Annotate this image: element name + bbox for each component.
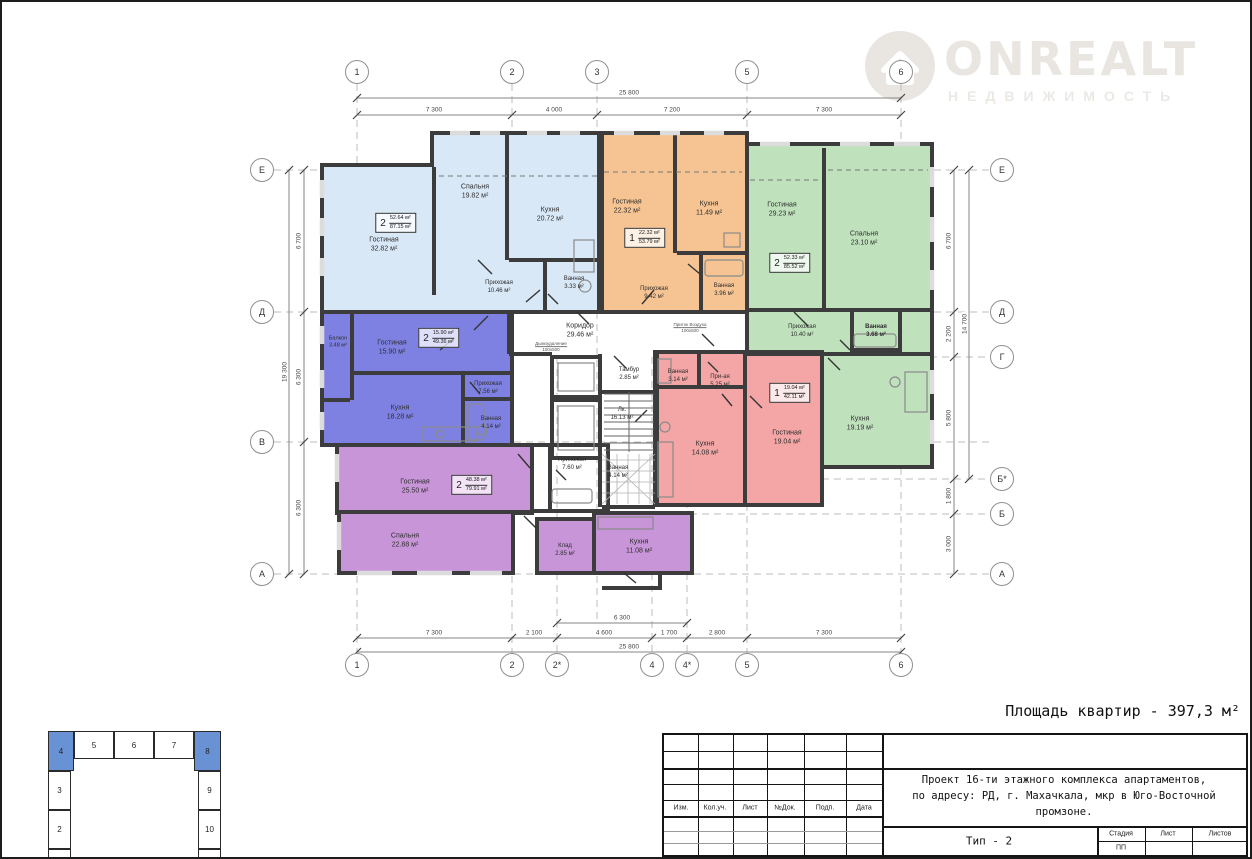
room-label-bath: Ванная 3.68 м² — [865, 323, 887, 339]
room-label-bedroom: Спальня 23.10 м² — [850, 230, 878, 249]
apartment-tag-blue: 2 52.64 м² 87.15 м² — [375, 213, 416, 233]
title-block: Изм. Кол.уч. Лист №Док. Подп. Дата Проек… — [662, 733, 1248, 857]
axis-bottom-6: 6 — [889, 653, 913, 677]
axis-right-b: Б — [990, 502, 1014, 526]
axis-top-3: 3 — [585, 60, 609, 84]
room-label-hall: Прихожая 7.60 м² — [558, 456, 586, 472]
keyplan-section-6: 6 — [114, 731, 154, 759]
room-label-tambour: Тамбур 2.85 м² — [619, 366, 639, 382]
room-label-kitchen: Кухня 20.72 м² — [537, 206, 564, 225]
room-label-storage: Клад 2.85 м² — [555, 542, 574, 558]
room-label-living: Гостиная 15.90 м² — [377, 339, 406, 358]
room-label-hall: Прихожая 7.56 м² — [474, 380, 502, 396]
room-label-living: Гостиная 22.32 м² — [612, 198, 641, 217]
balcony-dashed-lines — [439, 170, 928, 180]
room-label-bath: Ванная 3.14 м² — [668, 368, 689, 384]
axis-bottom-2s: 2* — [545, 653, 569, 677]
room-label-kitchen: Кухня 19.19 м² — [847, 415, 874, 434]
axis-top-6: 6 — [889, 60, 913, 84]
tb-col-podp: Подп. — [816, 805, 835, 812]
dim-right-seg: 6 700 — [946, 231, 953, 251]
dim-top-seg: 7 300 — [424, 107, 444, 114]
room-label-corridor: Коридор 29.46 м² — [566, 322, 594, 341]
floor-plan-sheet: ONREALT НЕДВИЖИМОСТЬ — [0, 0, 1252, 859]
dim-right-seg: 5 800 — [946, 408, 953, 428]
axis-bottom-4: 4 — [640, 653, 664, 677]
room-label-bedroom: Спальня 22.88 м² — [391, 532, 419, 551]
room-label-living: Гостиная 25.50 м² — [400, 478, 429, 497]
room-label-stair: Лк. 16.13 м² — [611, 406, 634, 422]
room-label-kitchen: Кухня 11.08 м² — [626, 538, 652, 557]
dim-right-seg: 2 200 — [946, 324, 953, 344]
dim-bottom-seg: 7 300 — [424, 630, 444, 637]
room-label-bath: Ванная 3.33 м² — [564, 275, 585, 291]
room-label-kitchen: Кухня 18.28 м² — [387, 404, 414, 423]
dim-top-total: 25 800 — [617, 90, 641, 97]
keyplan-section-5: 5 — [74, 731, 114, 759]
dim-top-seg: 7 200 — [662, 107, 682, 114]
tb-col-koluch: Кол.уч. — [704, 805, 727, 812]
room-label-bedroom: Спальня 19.82 м² — [461, 183, 489, 202]
dim-bottom-seg: 2 100 — [524, 630, 544, 637]
apartment-tag-violet: 2 48.38 м² 79.91 м² — [451, 475, 492, 495]
keyplan-section-2: 2 — [48, 810, 71, 849]
tb-col-list: Лист — [742, 805, 757, 812]
apartment-tag-indigo: 2 15.90 м² 49.36 м² — [418, 328, 459, 348]
dim-bottom-seg: 7 300 — [814, 630, 834, 637]
tb-sheets-header: Листов — [1209, 831, 1232, 838]
tb-stage-value: ПП — [1116, 845, 1126, 852]
tb-col-izm: Изм. — [674, 805, 689, 812]
dim-left-seg: 6 700 — [296, 231, 303, 251]
dim-right-seg: 1 800 — [946, 486, 953, 506]
dim-bottom-seg: 2 800 — [707, 630, 727, 637]
axis-top-5: 5 — [735, 60, 759, 84]
dim-bottom-seg: 4 600 — [594, 630, 614, 637]
keyplan-section-partial-right — [198, 849, 221, 859]
total-area-text: Площадь квартир - 397,3 м² — [1005, 702, 1240, 720]
apartment-tag-orange: 1 22.32 м² 53.79 м² — [624, 228, 665, 248]
axis-left-a: А — [250, 562, 274, 586]
apartment-tag-green: 2 52.33 м² 85.52 м² — [769, 253, 810, 273]
room-label-living: Гостиная 32.82 м² — [369, 236, 398, 255]
axis-bottom-4s: 4* — [675, 653, 699, 677]
room-label-bath: Ванная 4.14 м² — [608, 464, 629, 480]
axis-bottom-5: 5 — [735, 653, 759, 677]
dim-left-total: 19 300 — [282, 360, 289, 384]
axis-top-2: 2 — [500, 60, 524, 84]
keyplan-section-4-highlighted: 4 — [48, 731, 74, 771]
apartment-tag-pink: 1 19.04 м² 42.11 м² — [769, 383, 810, 403]
axis-right-bs: Б* — [990, 467, 1014, 491]
sheet-type-label: Тип - 2 — [966, 835, 1012, 848]
axis-right-a: А — [990, 562, 1014, 586]
project-description: Проект 16-ти этажного комплекса апартаме… — [882, 768, 1246, 826]
vent-note-air: Приток Воздуха 100х500 — [674, 322, 707, 334]
dim-bottom-total: 25 800 — [617, 644, 641, 651]
axis-left-v: В — [250, 430, 274, 454]
vent-note-smoke: Дымоудаление 100х500 — [535, 341, 567, 353]
room-label-hall: Прихожая 10.40 м² — [788, 323, 816, 339]
dim-top-seg: 4 000 — [544, 107, 564, 114]
room-label-living: Гостиная 29.23 м² — [767, 201, 796, 220]
keyplan-section-9: 9 — [198, 771, 221, 810]
room-label-hall: Прихожая 9.42 м² — [640, 285, 668, 301]
room-label-bath: Ванная 4.14 м² — [481, 415, 502, 431]
tb-col-ndok: №Док. — [774, 805, 795, 812]
axis-left-e: Е — [250, 158, 274, 182]
room-label-living: Гостиная 19.04 м² — [772, 429, 801, 448]
axis-right-g: Г — [990, 345, 1014, 369]
dim-top-seg: 7 300 — [814, 107, 834, 114]
axis-left-d: Д — [250, 300, 274, 324]
keyplan-section-3: 3 — [48, 771, 71, 810]
dim-right-total: 14 700 — [962, 312, 969, 336]
room-label-hall: При-ая 5.25 м² — [710, 373, 730, 389]
axis-bottom-2: 2 — [500, 653, 524, 677]
room-label-kitchen: Кухня 11.49 м² — [696, 200, 722, 219]
keyplan-section-8-highlighted: 8 — [194, 731, 221, 771]
room-label-balcony: Балкон 3.48 м² — [329, 336, 347, 351]
dim-bottom-seg: 1 700 — [659, 630, 679, 637]
dim-left-seg: 6 300 — [296, 498, 303, 518]
tb-stage-header: Стадия — [1109, 831, 1133, 838]
keyplan-section-10: 10 — [198, 810, 221, 849]
axis-top-1: 1 — [345, 60, 369, 84]
room-label-kitchen: Кухня 14.08 м² — [692, 440, 719, 459]
axis-right-e: Е — [990, 158, 1014, 182]
room-label-hall: Прихожая 10.46 м² — [485, 279, 513, 295]
keyplan-section-7: 7 — [154, 731, 194, 759]
tb-sheet-header: Лист — [1160, 831, 1175, 838]
dim-left-seg: 6 300 — [296, 367, 303, 387]
keyplan-section-partial-left — [48, 849, 71, 859]
axis-right-d: Д — [990, 300, 1014, 324]
room-label-bath: Ванная 3.96 м² — [714, 282, 735, 298]
dim-bottom-span: 6 300 — [612, 615, 632, 622]
axis-bottom-1: 1 — [345, 653, 369, 677]
dim-right-seg: 3 000 — [946, 534, 953, 554]
tb-col-data: Дата — [856, 805, 872, 812]
